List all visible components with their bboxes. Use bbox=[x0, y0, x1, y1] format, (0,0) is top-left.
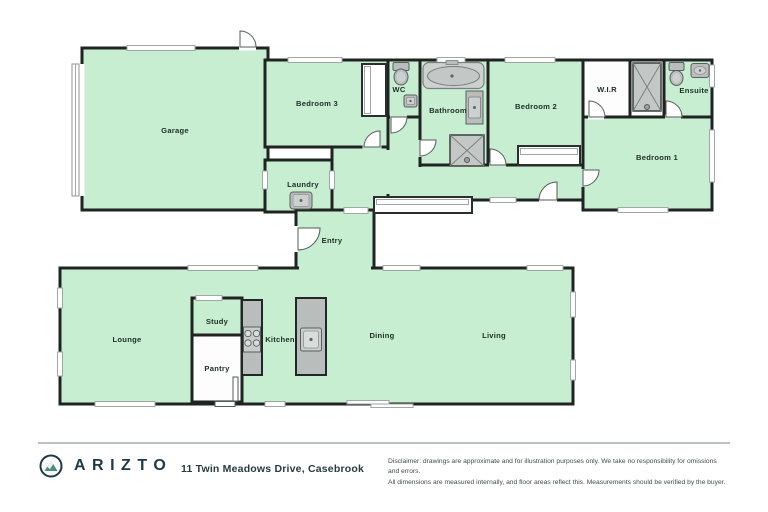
window bbox=[58, 352, 63, 376]
floor-plan-page: Garage Bedroom 3 Laundry WC Bathroom Bed… bbox=[0, 0, 768, 512]
opening-entry-living bbox=[299, 263, 371, 275]
disclaimer-text: Disclaimer: drawings are approximate and… bbox=[388, 457, 728, 488]
room-label-ensuite: Ensuite bbox=[679, 86, 708, 95]
wardrobe-bedroom3 bbox=[362, 64, 386, 116]
room-label-bedroom1: Bedroom 1 bbox=[636, 153, 678, 162]
room-label-pantry: Pantry bbox=[204, 364, 230, 373]
window bbox=[127, 46, 195, 51]
sink-icon-island bbox=[301, 328, 322, 351]
hall-corridor bbox=[420, 165, 583, 200]
room-bedroom1 bbox=[583, 117, 712, 210]
brand-logo-row: ARIZTO bbox=[39, 454, 172, 478]
room-label-bathroom: Bathroom bbox=[429, 106, 467, 115]
room-label-living: Living bbox=[482, 331, 506, 340]
opening-hall-entry bbox=[344, 208, 368, 214]
room-label-study: Study bbox=[206, 317, 229, 326]
room-label-kitchen: Kitchen bbox=[265, 335, 295, 344]
footer-divider bbox=[38, 442, 730, 444]
window bbox=[383, 266, 420, 271]
window bbox=[527, 266, 563, 271]
opening-hall-a-b bbox=[385, 150, 391, 194]
window bbox=[571, 360, 576, 380]
room-label-wc: WC bbox=[392, 85, 405, 94]
opening-hall-corridor bbox=[417, 167, 423, 198]
window bbox=[288, 58, 342, 63]
wardrobe-bedroom2 bbox=[518, 146, 580, 165]
room-label-bedroom2: Bedroom 2 bbox=[515, 102, 557, 111]
toilet-icon-ensuite bbox=[669, 63, 684, 86]
arizto-logo-icon bbox=[39, 454, 63, 478]
hall-cupboard bbox=[374, 197, 472, 213]
toilet-icon-wc bbox=[393, 63, 409, 86]
stove-icon bbox=[244, 327, 261, 352]
vanity-icon bbox=[466, 91, 483, 124]
opening-laundry-hall bbox=[330, 171, 335, 189]
shower-icon-ensuite bbox=[633, 63, 661, 111]
sliding-door bbox=[347, 401, 389, 405]
room-label-wir: W.I.R bbox=[597, 85, 617, 94]
sink-icon-ensuite bbox=[691, 64, 709, 78]
room-label-entry: Entry bbox=[322, 236, 343, 245]
room-label-bedroom3: Bedroom 3 bbox=[296, 99, 338, 108]
bathtub-icon bbox=[423, 61, 484, 89]
window bbox=[58, 288, 63, 308]
window bbox=[265, 402, 285, 407]
room-label-lounge: Lounge bbox=[113, 335, 142, 344]
sink-icon-wc bbox=[404, 95, 417, 107]
sliding-door bbox=[371, 404, 413, 408]
listing-address: 11 Twin Meadows Drive, Casebrook bbox=[181, 463, 364, 475]
floor-plan: Garage Bedroom 3 Laundry WC Bathroom Bed… bbox=[0, 0, 768, 440]
opening-garage-laundry bbox=[263, 171, 268, 189]
window bbox=[710, 65, 715, 87]
window bbox=[505, 58, 555, 63]
brand-name: ARIZTO bbox=[74, 457, 172, 475]
room-label-garage: Garage bbox=[161, 126, 189, 135]
window bbox=[95, 402, 155, 407]
opening-study bbox=[196, 296, 222, 301]
door-garage-exterior bbox=[239, 31, 256, 51]
garage-door bbox=[72, 64, 85, 196]
disclaimer-line-2: All dimensions are measured internally, … bbox=[388, 478, 728, 488]
room-label-dining: Dining bbox=[369, 331, 394, 340]
window bbox=[490, 198, 516, 203]
window bbox=[188, 266, 258, 271]
window bbox=[571, 292, 576, 317]
shower-icon-bathroom bbox=[450, 135, 484, 166]
window bbox=[710, 130, 715, 182]
window bbox=[618, 208, 668, 213]
room-label-laundry: Laundry bbox=[287, 180, 319, 189]
disclaimer-line-1: Disclaimer: drawings are approximate and… bbox=[388, 457, 728, 478]
laundry-tub-icon bbox=[290, 192, 312, 209]
